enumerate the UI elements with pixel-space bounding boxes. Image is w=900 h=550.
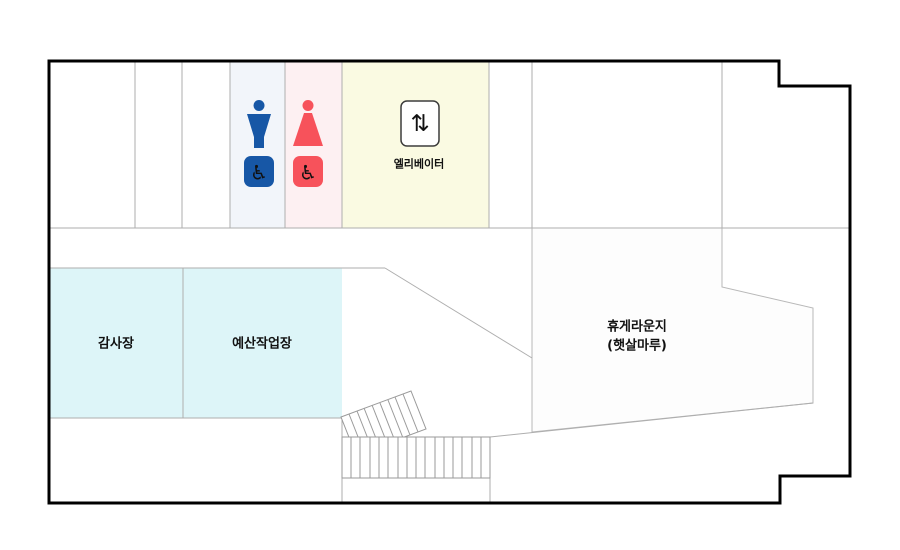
audit-room-label: 감사장 [98, 336, 134, 352]
floor-plan-page: ♿ ♿ ⇅ 엘리베이터 감사장 예산작업장 휴게라운지 (햇살마루) [0, 0, 900, 550]
lounge-room [532, 228, 813, 432]
budget-workroom-label: 예산작업장 [232, 336, 292, 352]
elevator-symbol: ⇅ 엘리베이터 [394, 101, 445, 171]
lounge-label-line2: (햇살마루) [607, 338, 667, 354]
elevator-label: 엘리베이터 [394, 157, 445, 171]
male-wheelchair-icon: ♿ [250, 161, 268, 185]
elevator-arrows-icon: ⇅ [410, 111, 429, 137]
floor-plan-svg: ♿ ♿ ⇅ 엘리베이터 감사장 예산작업장 휴게라운지 (햇살마루) [0, 0, 900, 550]
lounge-label-line1: 휴게라운지 [607, 319, 667, 335]
female-wheelchair-icon: ♿ [299, 161, 317, 185]
stairs-straight [342, 437, 490, 478]
